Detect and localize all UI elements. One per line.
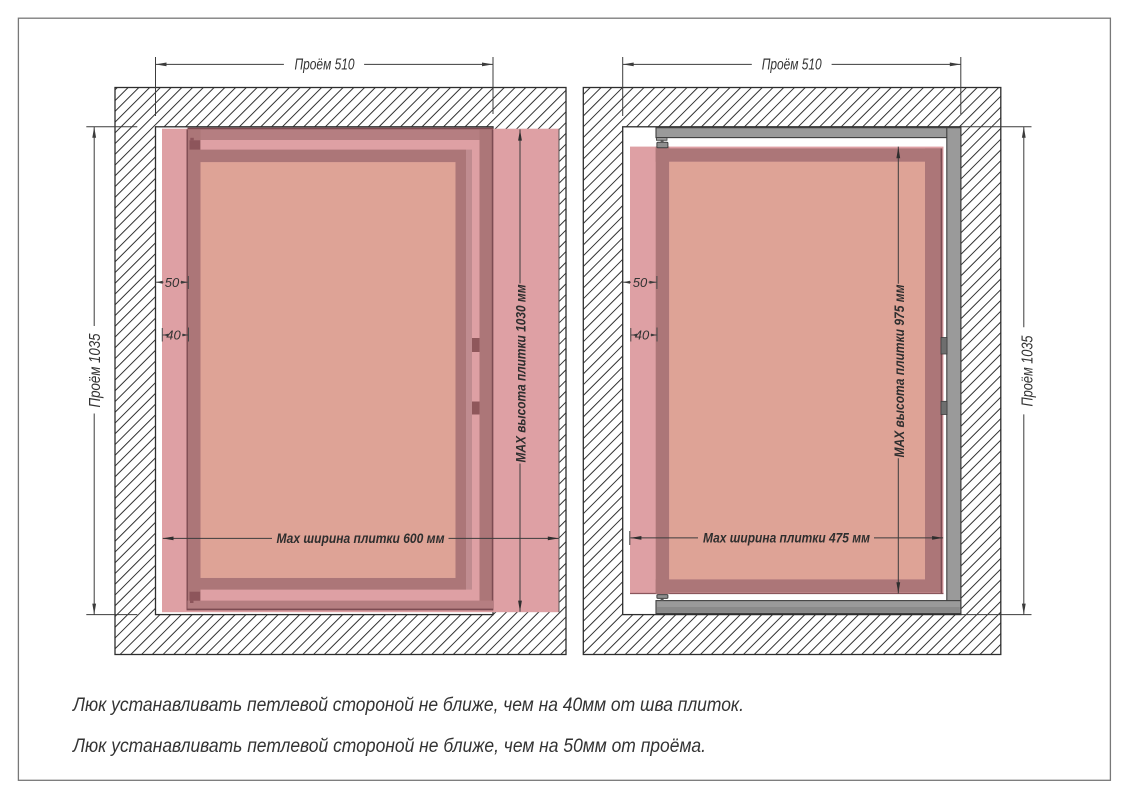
svg-text:50: 50 [633, 275, 648, 290]
svg-text:Проём 1035: Проём 1035 [1020, 335, 1037, 406]
svg-text:Проём 510: Проём 510 [295, 57, 355, 74]
svg-text:40: 40 [166, 328, 181, 343]
svg-text:50: 50 [165, 275, 180, 290]
svg-text:MAX высота плитки 975 мм: MAX высота плитки 975 мм [891, 284, 907, 458]
svg-text:Проём 1035: Проём 1035 [87, 333, 104, 407]
svg-text:Проём 510: Проём 510 [762, 57, 822, 74]
svg-text:Люк устанавливать петлевой сто: Люк устанавливать петлевой стороной не б… [71, 735, 706, 757]
svg-text:Люк устанавливать петлевой сто: Люк устанавливать петлевой стороной не б… [71, 694, 744, 716]
svg-text:Мах ширина плитки 600 мм: Мах ширина плитки 600 мм [277, 530, 446, 546]
svg-text:MAX высота плитки 1030 мм: MAX высота плитки 1030 мм [512, 284, 528, 463]
svg-text:40: 40 [635, 328, 650, 343]
svg-text:Мах ширина плитки 475 мм: Мах ширина плитки 475 мм [703, 530, 871, 546]
